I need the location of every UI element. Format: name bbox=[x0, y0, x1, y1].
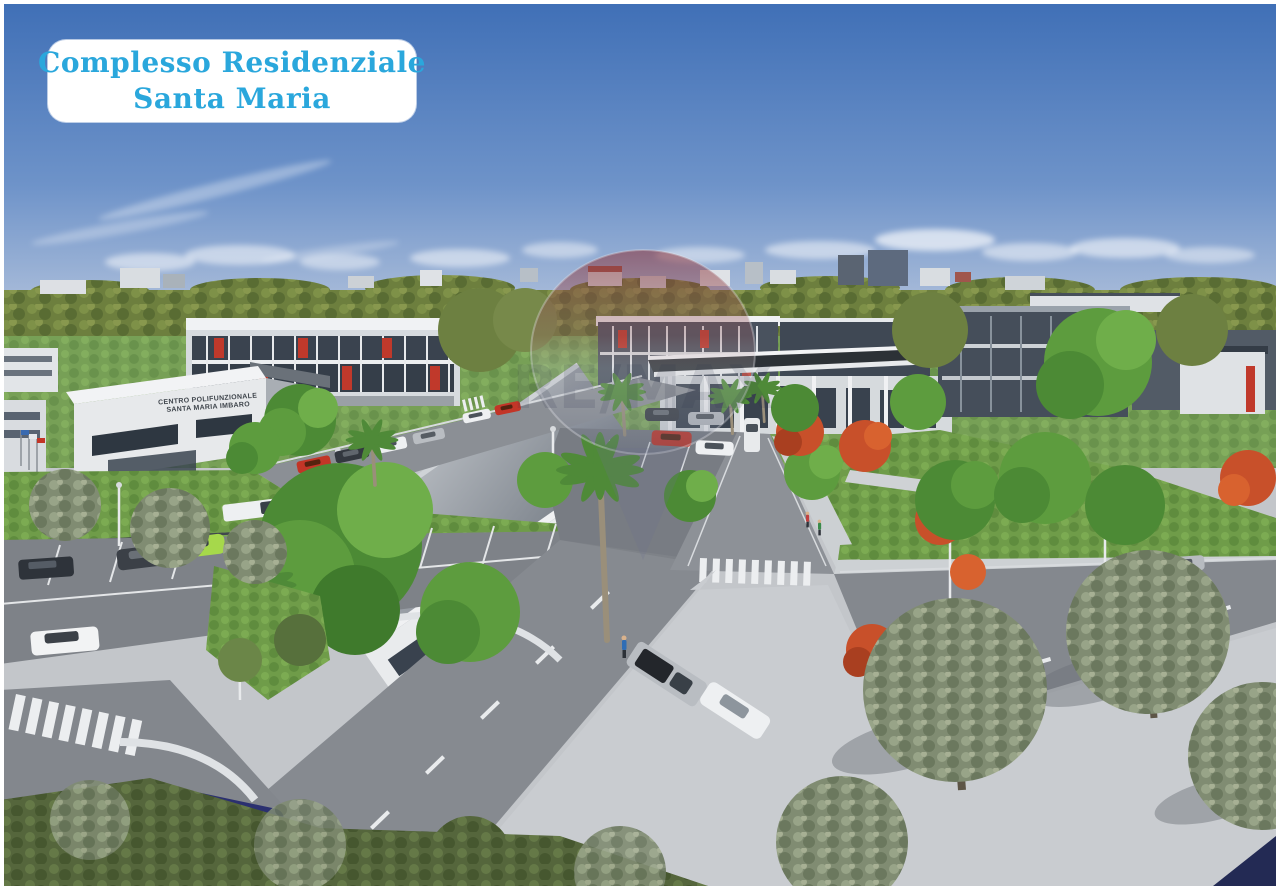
title-badge: Complesso Residenziale Santa Maria bbox=[48, 40, 416, 122]
car-white-van bbox=[744, 418, 760, 452]
red-flowering-tree bbox=[950, 554, 986, 590]
rendering-scene: RE/MAX bbox=[0, 0, 1280, 890]
real-estate-rendering: RE/MAX Complesso Residenziale Santa Mari… bbox=[0, 0, 1280, 890]
car-white bbox=[695, 440, 734, 456]
watermark-label: RE/MAX bbox=[512, 353, 774, 423]
title-line1: Complesso Residenziale bbox=[38, 45, 426, 81]
car-dark-van bbox=[18, 556, 74, 580]
title-line2: Santa Maria bbox=[133, 81, 331, 117]
green-tree bbox=[1156, 294, 1228, 366]
red-stripe-accent bbox=[1246, 366, 1255, 412]
green-tree bbox=[1085, 465, 1165, 545]
green-tree bbox=[890, 374, 946, 430]
green-tree bbox=[771, 384, 819, 432]
crosswalk-zebra bbox=[699, 558, 811, 586]
